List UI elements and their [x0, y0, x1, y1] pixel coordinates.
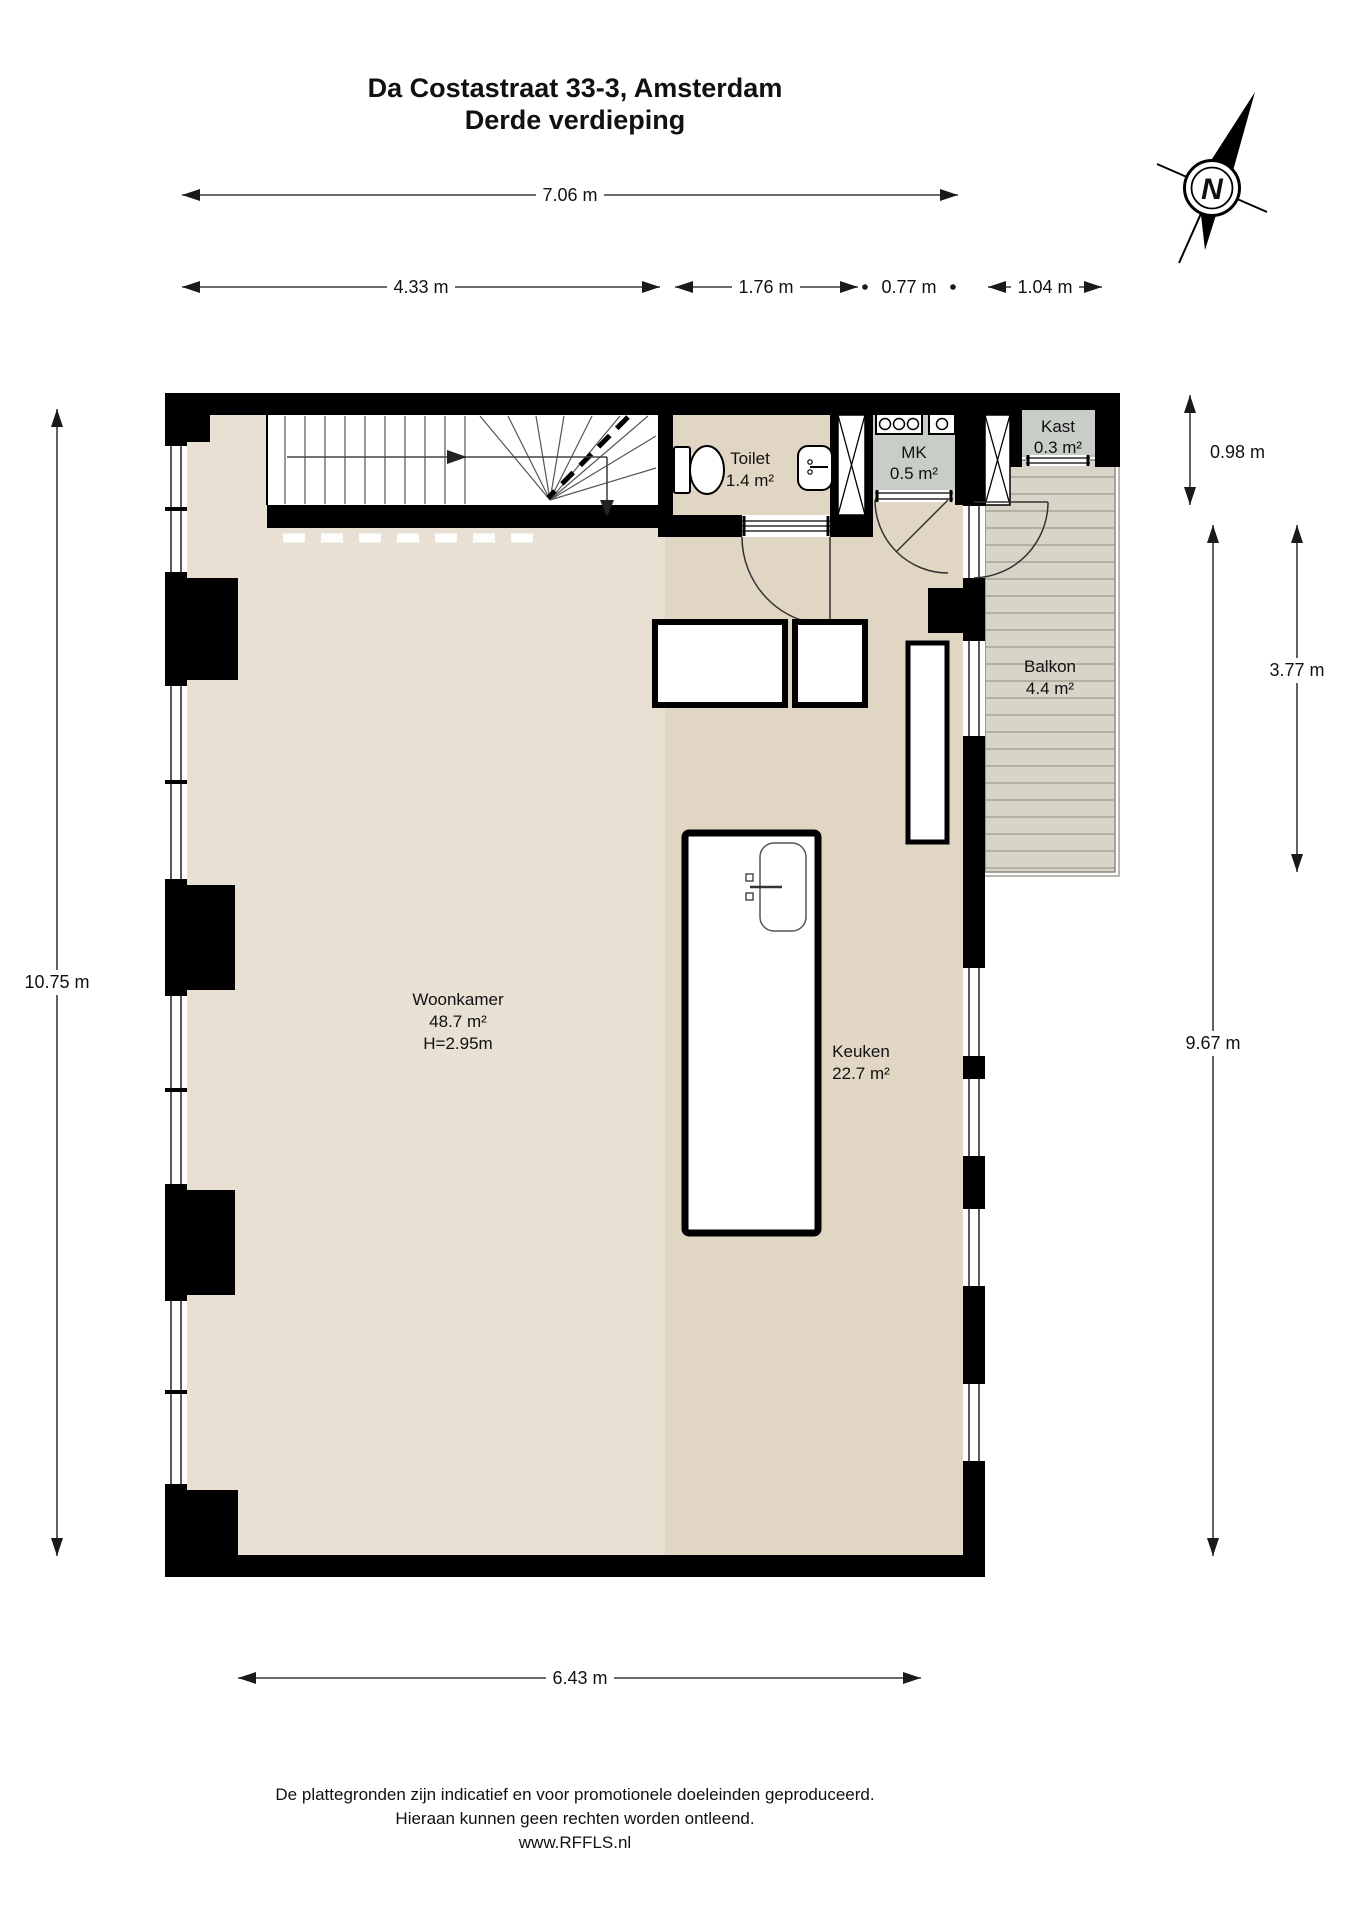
- footer-line-2: Hieraan kunnen geen rechten worden ontle…: [395, 1809, 754, 1828]
- window-right-1: [963, 637, 985, 740]
- window-right-5: [963, 1380, 985, 1465]
- mk-label: MK: [901, 443, 927, 462]
- mk-door-threshold: [875, 490, 953, 502]
- window-right-3: [963, 1075, 985, 1160]
- floorplan-drawing: Da Costastraat 33-3, Amsterdam Derde ver…: [0, 0, 1358, 1920]
- wall-shaft2-right: [1010, 415, 1022, 467]
- wall-toilet-bottom: [658, 515, 742, 537]
- title-address: Da Costastraat 33-3, Amsterdam: [368, 73, 783, 103]
- footer-website: www.RFFLS.nl: [518, 1833, 631, 1852]
- dim-right-balcony: 3.77 m: [1269, 660, 1324, 680]
- toilet-sink-icon: [798, 446, 832, 490]
- kast-door-threshold: [1026, 455, 1090, 466]
- kitchen-island: [685, 833, 818, 1233]
- wall-pillar-left-3: [165, 1190, 235, 1295]
- window-left-4: [165, 1297, 187, 1488]
- shaft-1: [838, 415, 865, 515]
- dim-top-seg1: 4.33 m: [393, 277, 448, 297]
- wall-pillar-left-1: [165, 578, 238, 680]
- wall-bottom: [165, 1555, 985, 1577]
- dim-top-seg3: 0.77 m: [881, 277, 936, 297]
- keuken-area-label: 22.7 m²: [832, 1064, 890, 1083]
- woonkamer-height-label: H=2.95m: [423, 1034, 492, 1053]
- wall-pillar-left-4: [165, 1490, 238, 1577]
- window-left-3: [165, 992, 187, 1188]
- dim-right-total: 9.67 m: [1185, 1033, 1240, 1053]
- wall-shaft1-bottom: [838, 515, 873, 537]
- toilet-fixture-icon: [674, 446, 724, 494]
- wall-top: [165, 393, 1120, 415]
- stairs-well: [267, 415, 658, 505]
- dim-dot-left: [862, 284, 868, 290]
- mk-area-label: 0.5 m²: [890, 464, 939, 483]
- window-right-2: [963, 964, 985, 1060]
- keuken-label: Keuken: [832, 1042, 890, 1061]
- dim-top-seg2: 1.76 m: [738, 277, 793, 297]
- wall-kast-right: [1095, 393, 1120, 467]
- kast-label: Kast: [1041, 417, 1075, 436]
- wall-pillar-topleft: [165, 415, 210, 442]
- dim-top-seg4: 1.04 m: [1017, 277, 1072, 297]
- dim-top-total: 7.06 m: [542, 185, 597, 205]
- wall-stub-keuken: [928, 588, 985, 633]
- wall-pillar-left-2: [165, 885, 235, 990]
- woonkamer-label: Woonkamer: [412, 990, 504, 1009]
- window-right-4: [963, 1205, 985, 1290]
- toilet-label: Toilet: [730, 449, 770, 468]
- floor-areas: [187, 415, 963, 1555]
- wall-mk-right: [955, 415, 985, 505]
- floorplan-page: Da Costastraat 33-3, Amsterdam Derde ver…: [0, 0, 1358, 1920]
- meter-box-icon: [876, 414, 955, 434]
- kitchen-counter: [908, 643, 947, 842]
- footer-line-1: De plattegronden zijn indicatief en voor…: [275, 1785, 874, 1804]
- window-left-2: [165, 682, 187, 883]
- shaft-2: [985, 415, 1010, 505]
- wall-stairs-bottom: [267, 505, 658, 528]
- dim-bottom-total: 6.43 m: [552, 1668, 607, 1688]
- window-left-1: [165, 442, 187, 576]
- balkon-area-label: 4.4 m²: [1026, 679, 1075, 698]
- kast-area-label: 0.3 m²: [1034, 438, 1083, 457]
- title-floor: Derde verdieping: [465, 105, 686, 135]
- kitchen-cabinet-1: [655, 622, 785, 705]
- balkon-label: Balkon: [1024, 657, 1076, 676]
- dim-right-top: 0.98 m: [1210, 442, 1265, 462]
- kitchen-cabinet-2: [795, 622, 865, 705]
- dim-left-total: 10.75 m: [24, 972, 89, 992]
- dim-dot-right: [950, 284, 956, 290]
- compass-north-letter: N: [1201, 173, 1224, 206]
- woonkamer-floor: [187, 415, 665, 1555]
- toilet-area-label: 1.4 m²: [726, 471, 775, 490]
- woonkamer-area-label: 48.7 m²: [429, 1012, 487, 1031]
- kast-room: Kast 0.3 m²: [1022, 410, 1095, 466]
